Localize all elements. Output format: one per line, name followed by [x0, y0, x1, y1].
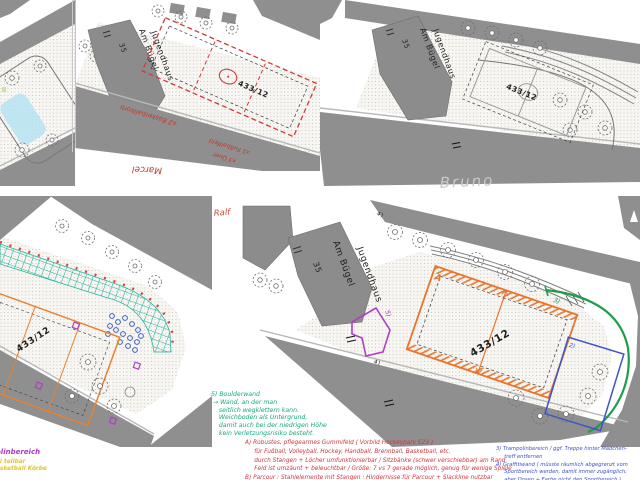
plan-top-left — [0, 0, 75, 186]
scanned-plan-collage: Jugendhaus Am Bügel 35 433/12 x2 Basketb… — [0, 0, 640, 480]
caption-yellow-1: al teilbar — [0, 459, 26, 465]
green-note-boulderwand: 5) Boulderwand → Wand, an der man seitli… — [211, 391, 327, 438]
green-mark — [2, 87, 6, 92]
caption-yellow-2: asketball Körbe — [0, 466, 47, 472]
plan-top-middle: Jugendhaus Am Bügel 35 433/12 x2 Basketb… — [75, 0, 320, 178]
author-bruno: Bruno — [439, 171, 495, 192]
red-note-gummifeld: A) Robustes, pflegearmes Gummifeld ( Vor… — [245, 439, 512, 480]
author-ralf: Ralf — [213, 207, 232, 219]
plan-bottom-left: 433/12 — [0, 196, 212, 447]
top-buildings — [169, 0, 320, 40]
jugendhaus-building — [288, 222, 372, 326]
author-marcel: Marcel — [131, 164, 162, 175]
corner-building — [243, 206, 293, 270]
caption-purple: olinbereich — [0, 448, 40, 456]
blue-note-trampolin-graffiti: 3) Trampolinbereich / ggf. Treppe hinter… — [496, 446, 628, 480]
plan-top-right: Jugendhaus Am Bügel 35 433/12 Bruno — [320, 0, 640, 200]
